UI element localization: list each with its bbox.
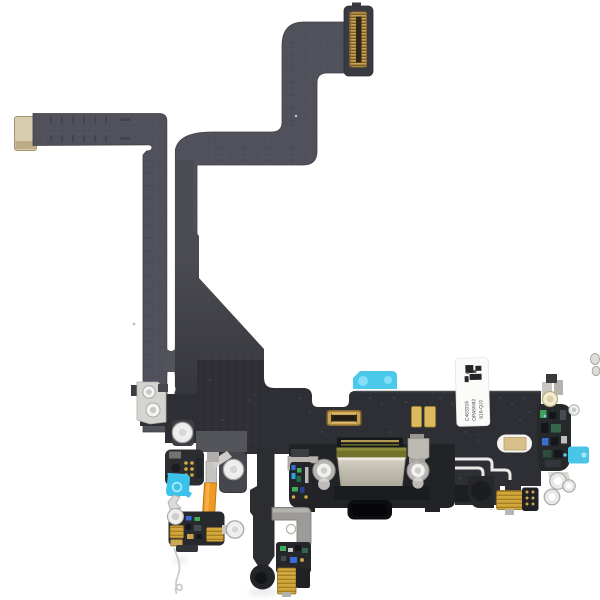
svg-text:OPA5N92: OPA5N92 bbox=[471, 399, 478, 422]
svg-text:C463316: C463316 bbox=[464, 401, 471, 422]
svg-text:916-QJ1: 916-QJ1 bbox=[478, 399, 485, 419]
